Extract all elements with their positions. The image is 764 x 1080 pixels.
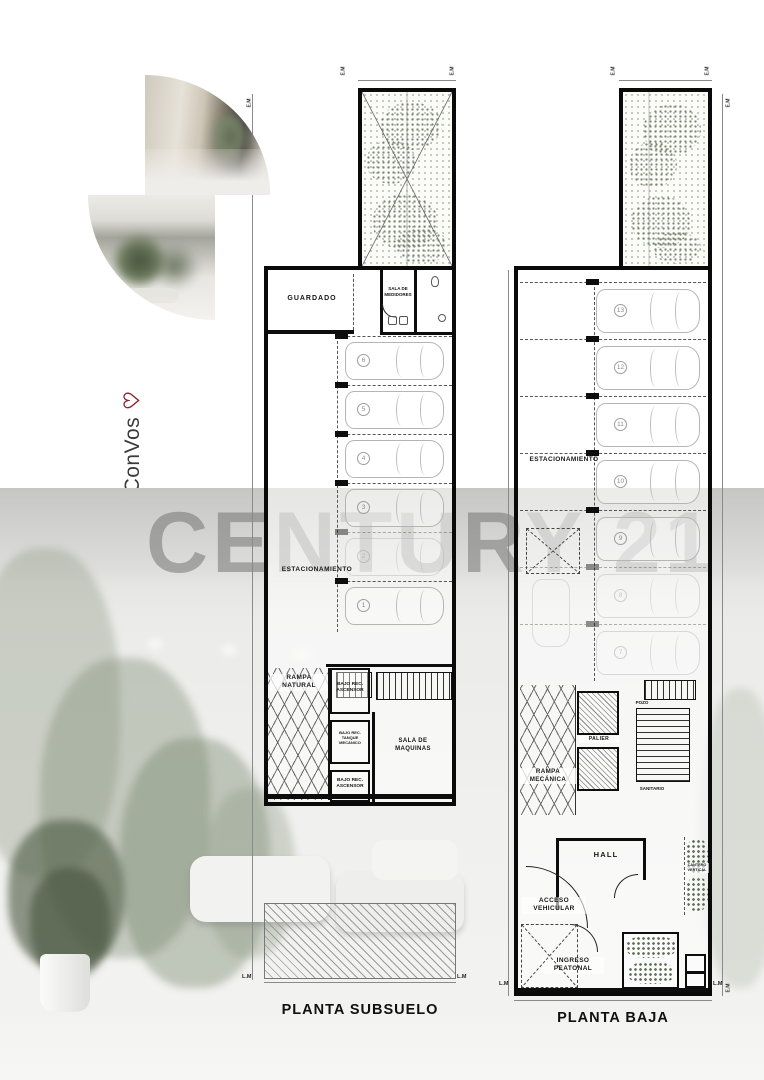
- service-box: [685, 954, 706, 988]
- parking-stall: 4: [337, 434, 452, 483]
- parking-stall: 1: [337, 581, 452, 630]
- label-hall: HALL: [576, 850, 636, 860]
- lm-label: L.M: [457, 974, 466, 980]
- lm-label: L.M: [499, 981, 508, 987]
- label-rampa-mecanica: RAMPA MECÁNICA: [520, 768, 576, 784]
- car-icon: [596, 574, 700, 618]
- em-label: E.M: [725, 984, 731, 993]
- label-sala-maquinas: SALA DE MAQUINAS: [374, 738, 452, 754]
- parking-stall: 3: [337, 483, 452, 532]
- wall-segment: [372, 712, 375, 802]
- wall-block: [586, 507, 599, 513]
- em-label: E.M: [246, 99, 252, 108]
- floorplan-subsuelo: GUARDADO SALA DE MEDIDORES 6 5: [264, 266, 456, 806]
- washer-icon: [399, 316, 408, 325]
- label-sala-medidores: SALA DE MEDIDORES: [380, 286, 416, 298]
- sofa: [372, 840, 458, 880]
- wall-block: [586, 393, 599, 399]
- parking-number: 3: [357, 501, 370, 514]
- partition-dashed: [353, 274, 354, 330]
- parking-number: 5: [357, 403, 370, 416]
- wall-block: [586, 336, 599, 342]
- door-arc: [614, 874, 638, 898]
- heart-icon: ♡: [121, 391, 144, 410]
- bajo-rec-ascensor-room: BAJO REC. ASCENSOR: [330, 668, 370, 714]
- wall-segment: [268, 794, 452, 799]
- wall-block: [335, 578, 348, 584]
- stairs-main: [636, 708, 690, 782]
- label-rampa-natural: RAMPA NATURAL: [270, 674, 328, 691]
- em-label: E.M: [725, 99, 731, 108]
- em-label: E.M: [340, 67, 346, 76]
- plan-title-subsuelo: PLANTA SUBSUELO: [264, 1002, 456, 1018]
- cantero-vertical: CANTERO VERTICAL: [684, 837, 708, 915]
- elevator-shaft: [577, 691, 619, 735]
- dimension-line: [358, 80, 456, 81]
- parking-number: 6: [357, 354, 370, 367]
- label-sanitario: SANITARIO: [626, 786, 678, 792]
- wall-segment: [643, 838, 646, 880]
- plan-title-baja: PLANTA BAJA: [514, 1010, 712, 1026]
- wall-segment: [380, 270, 383, 334]
- label-acceso: ACCESO VEHICULAR: [522, 897, 586, 914]
- car-icon: [596, 289, 700, 333]
- label-estacionamiento-sub: ESTACIONAMIENTO: [270, 566, 364, 574]
- dimension-line: [252, 94, 253, 980]
- garden-strip-subsuelo: [358, 88, 456, 270]
- ceiling-light: [222, 646, 236, 654]
- patio-bench: [126, 288, 179, 303]
- parking-number: 4: [357, 452, 370, 465]
- parking-number: 2: [357, 550, 370, 563]
- shrub-cluster: [629, 142, 677, 188]
- dimension-line: [264, 982, 456, 983]
- car-icon: [596, 403, 700, 447]
- wall-segment: [414, 270, 417, 334]
- parking-number: 11: [614, 418, 627, 431]
- parking-stall: 6: [337, 336, 452, 385]
- parking-stall: 5: [337, 385, 452, 434]
- wall-block: [335, 431, 348, 437]
- car-icon: [596, 460, 700, 504]
- label-guardado: GUARDADO: [272, 294, 352, 303]
- toilet-icon: [431, 276, 439, 287]
- parking-stall: 13: [520, 282, 706, 339]
- shrub-cluster: [366, 140, 416, 184]
- patio-plants: [149, 243, 200, 291]
- parking-number: 7: [614, 646, 627, 659]
- parking-number: 12: [614, 361, 627, 374]
- wall-block: [335, 480, 348, 486]
- parking-number: 1: [357, 599, 370, 612]
- em-label: E.M: [610, 67, 616, 76]
- garden-strip-baja: [619, 88, 712, 270]
- vehicular-pit-dashed: [521, 924, 578, 988]
- wall-block: [335, 333, 348, 339]
- ramp-pit-dashed: [526, 528, 580, 574]
- label-estacionamiento-pb: ESTACIONAMIENTO: [522, 456, 606, 464]
- flyer-page: CENTURY 21 #InversiónConVos♡ E.M E.M E.M…: [0, 0, 764, 1080]
- patio-photo: [88, 195, 215, 320]
- wall-segment: [326, 664, 452, 667]
- dimension-line: [508, 270, 509, 996]
- em-label: E.M: [449, 67, 455, 76]
- lm-label: L.M: [713, 981, 722, 987]
- car-icon: [596, 517, 700, 561]
- car-icon: [532, 579, 570, 647]
- parking-number: 13: [614, 304, 627, 317]
- dimension-line: [514, 1000, 712, 1001]
- parking-number: 8: [614, 589, 627, 602]
- parking-number: 10: [614, 475, 627, 488]
- shrub-cluster: [396, 228, 448, 264]
- label-pozo: POZO: [622, 700, 662, 706]
- wall-segment: [380, 332, 452, 335]
- rampa-mecanica-area: [520, 685, 576, 815]
- label-palier: PALIER: [579, 736, 619, 743]
- parking-stall: 12: [520, 339, 706, 396]
- shrub-cluster: [653, 232, 701, 264]
- floorplan-baja: 13 12 11 10 9 8: [514, 266, 712, 996]
- wall-segment: [556, 838, 646, 841]
- wall-segment: [518, 988, 708, 992]
- sink-icon: [438, 314, 446, 322]
- washer-icon: [388, 316, 397, 325]
- car-icon: [596, 346, 700, 390]
- entry-planter: [622, 932, 679, 989]
- parking-number: 9: [614, 532, 627, 545]
- wall-block: [586, 279, 599, 285]
- wall-block: [335, 529, 348, 535]
- car-icon: [596, 631, 700, 675]
- em-label: E.M: [704, 67, 710, 76]
- parking-stalls-subsuelo: 6 5 4 3 2 1: [337, 336, 452, 632]
- wall-block: [335, 382, 348, 388]
- wall-block: [586, 564, 599, 570]
- ceiling-light: [148, 640, 162, 648]
- stairs: [376, 672, 452, 700]
- elevator-shaft: [577, 747, 619, 791]
- tagline-rest: ConVos: [121, 417, 144, 494]
- sidewalk-hatch-sub: [264, 903, 456, 979]
- dimension-line: [619, 80, 712, 81]
- lobby-photo: [145, 75, 270, 195]
- bajo-rec-tanque-room: BAJO REC. TANQUE MECÁNICO: [330, 720, 370, 764]
- wall-block: [586, 621, 599, 627]
- parking-stall: 11: [520, 396, 706, 453]
- lm-label: L.M: [242, 974, 251, 980]
- stairs: [644, 680, 696, 700]
- dimension-line: [722, 94, 723, 996]
- plant-pot: [40, 954, 90, 1012]
